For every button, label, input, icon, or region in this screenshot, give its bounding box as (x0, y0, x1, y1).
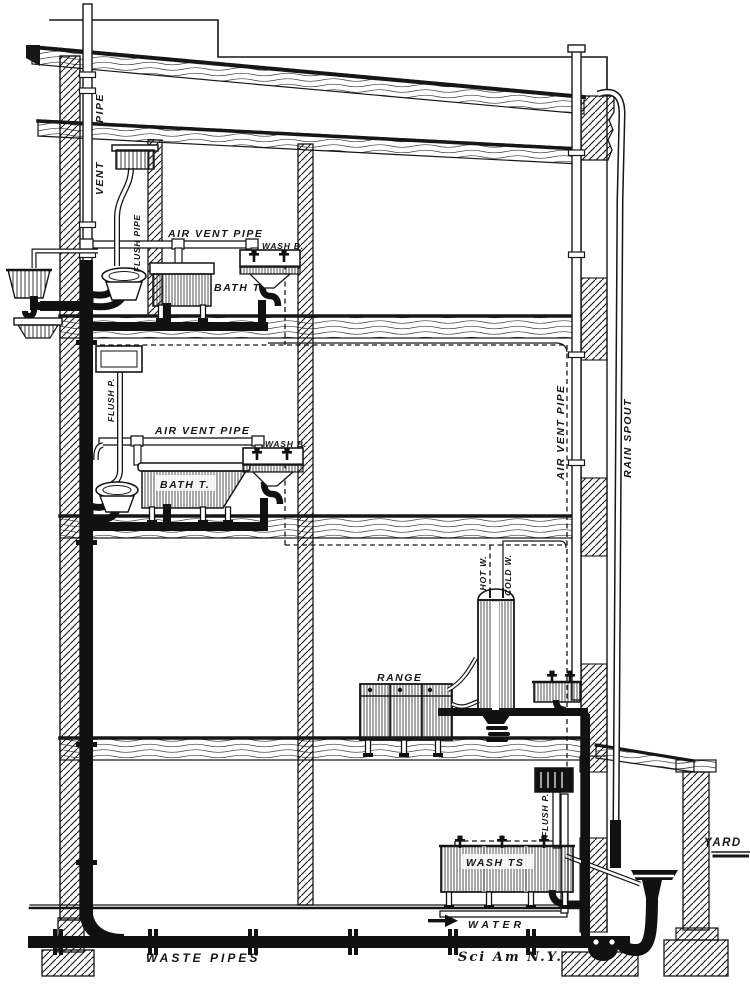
plumbing-sectional-diagram: PIPE VENT FLUSH PIPE AIR VENT PIPE WASH … (0, 0, 750, 985)
drip-tray (14, 318, 62, 338)
yard-ground (712, 852, 750, 856)
label-air-vent-2: AIR VENT PIPE (154, 425, 250, 437)
label-bath-t-1: BATH T. (214, 282, 264, 294)
label-wash-ts-group: WASH TS (462, 854, 534, 869)
label-hot-w: HOT W. (478, 556, 488, 591)
label-credit: Sci Am N.Y. (458, 950, 563, 965)
label-air-vent-stack: AIR VENT PIPE (555, 384, 567, 480)
label-wash-b-1: WASH B. (262, 241, 304, 251)
bath-tub-1 (150, 263, 214, 322)
label-yard: YARD (704, 837, 742, 849)
diagram-canvas: PIPE VENT FLUSH PIPE AIR VENT PIPE WASH … (0, 0, 750, 985)
laundry-flush-cistern (535, 768, 573, 792)
label-flush-p-laundry: FLUSH P. (540, 793, 550, 837)
air-vent-run-bath1 (80, 239, 258, 266)
roof-band (26, 45, 584, 114)
water-supply-dashed-lines (100, 256, 567, 912)
label-bath-t-2: BATH T. (160, 479, 210, 491)
basement-ground (30, 905, 581, 908)
kitchen-sink (532, 671, 582, 702)
label-cold-w: COLD W. (503, 554, 513, 596)
label-wash-b-2: WASH B. (265, 439, 307, 449)
label-flush-p-2: FLUSH P. (106, 378, 116, 422)
label-bath-t-2-group: BATH T. (156, 475, 216, 491)
label-flush-pipe-1: FLUSH PIPE (132, 214, 142, 272)
label-vent-pipe-word-vent: VENT (94, 161, 106, 195)
flush-cistern-1 (112, 145, 158, 169)
left-wall (60, 56, 80, 920)
label-wash-ts: WASH TS (466, 857, 524, 869)
label-range: RANGE (377, 672, 422, 684)
flush-cistern-2 (96, 346, 142, 372)
label-air-vent-1: AIR VENT PIPE (167, 228, 263, 240)
hot-water-boiler (448, 588, 514, 742)
label-water: WATER (468, 919, 525, 931)
label-rain-spout: RAIN SPOUT (622, 398, 634, 478)
label-waste-pipes: WASTE PIPES (146, 951, 260, 965)
yard-wall (676, 760, 718, 940)
label-vent-pipe-word-pipe: PIPE (94, 93, 106, 123)
wash-basin-2 (243, 448, 303, 486)
flush-pipe-1 (117, 168, 131, 266)
